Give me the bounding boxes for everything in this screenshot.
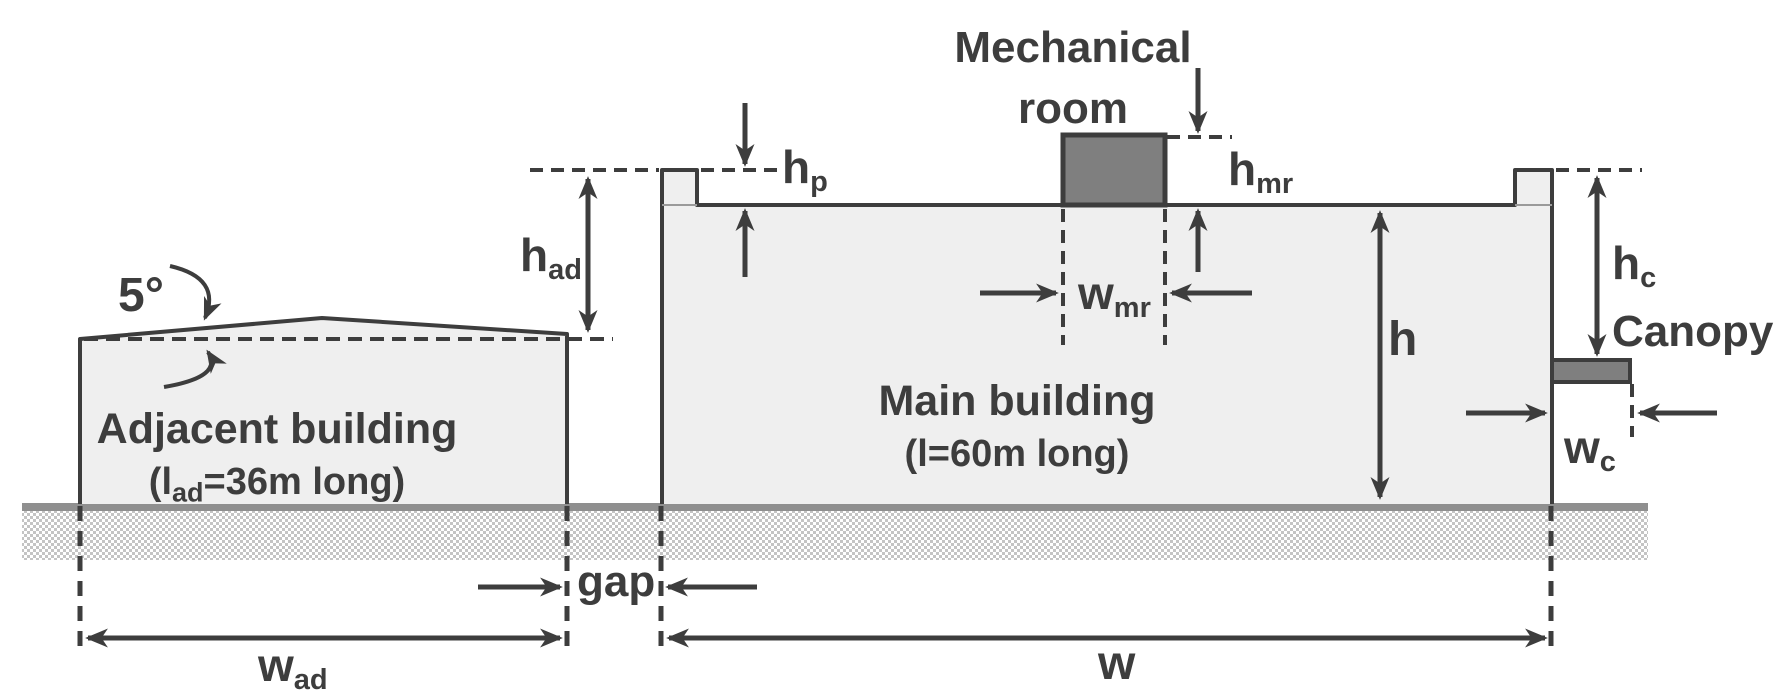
- ground: [22, 503, 1648, 560]
- angle-upper-arc: [170, 266, 209, 318]
- building-section-diagram: Mechanical room 5° had hp hmr wmr h hc C…: [0, 0, 1782, 692]
- adjacent-building-name: Adjacent building: [97, 402, 458, 458]
- h-c-label: hc: [1612, 240, 1656, 286]
- mechanical-room-label: Mechanical room: [954, 18, 1191, 139]
- main-building-size: (l=60m long): [878, 430, 1155, 479]
- h-p-label: hp: [782, 144, 828, 190]
- adjacent-building-label: Adjacent building (lad=36m long): [97, 402, 458, 507]
- h-label: h: [1388, 316, 1417, 364]
- adjacent-building-size: (lad=36m long): [97, 458, 458, 507]
- roof-angle-label: 5°: [118, 272, 164, 320]
- w-label: w: [1098, 640, 1135, 688]
- mechanical-room-shape: [1063, 135, 1165, 205]
- ground-hatch: [22, 511, 1648, 560]
- w-c-label: wc: [1564, 424, 1616, 470]
- diagram-canvas: [0, 0, 1782, 692]
- main-building-label: Main building (l=60m long): [878, 374, 1155, 479]
- canopy-shape: [1552, 360, 1630, 382]
- h-ad-label: had: [520, 232, 582, 278]
- w-ad-label: wad: [258, 642, 328, 688]
- mechanical-room-label-line2: room: [954, 79, 1191, 140]
- main-building-name: Main building: [878, 374, 1155, 430]
- mechanical-room-label-line1: Mechanical: [954, 18, 1191, 79]
- gap-label: gap: [577, 560, 655, 604]
- canopy-label: Canopy: [1612, 310, 1773, 354]
- h-mr-label: hmr: [1228, 146, 1293, 192]
- w-mr-label: wmr: [1078, 270, 1151, 316]
